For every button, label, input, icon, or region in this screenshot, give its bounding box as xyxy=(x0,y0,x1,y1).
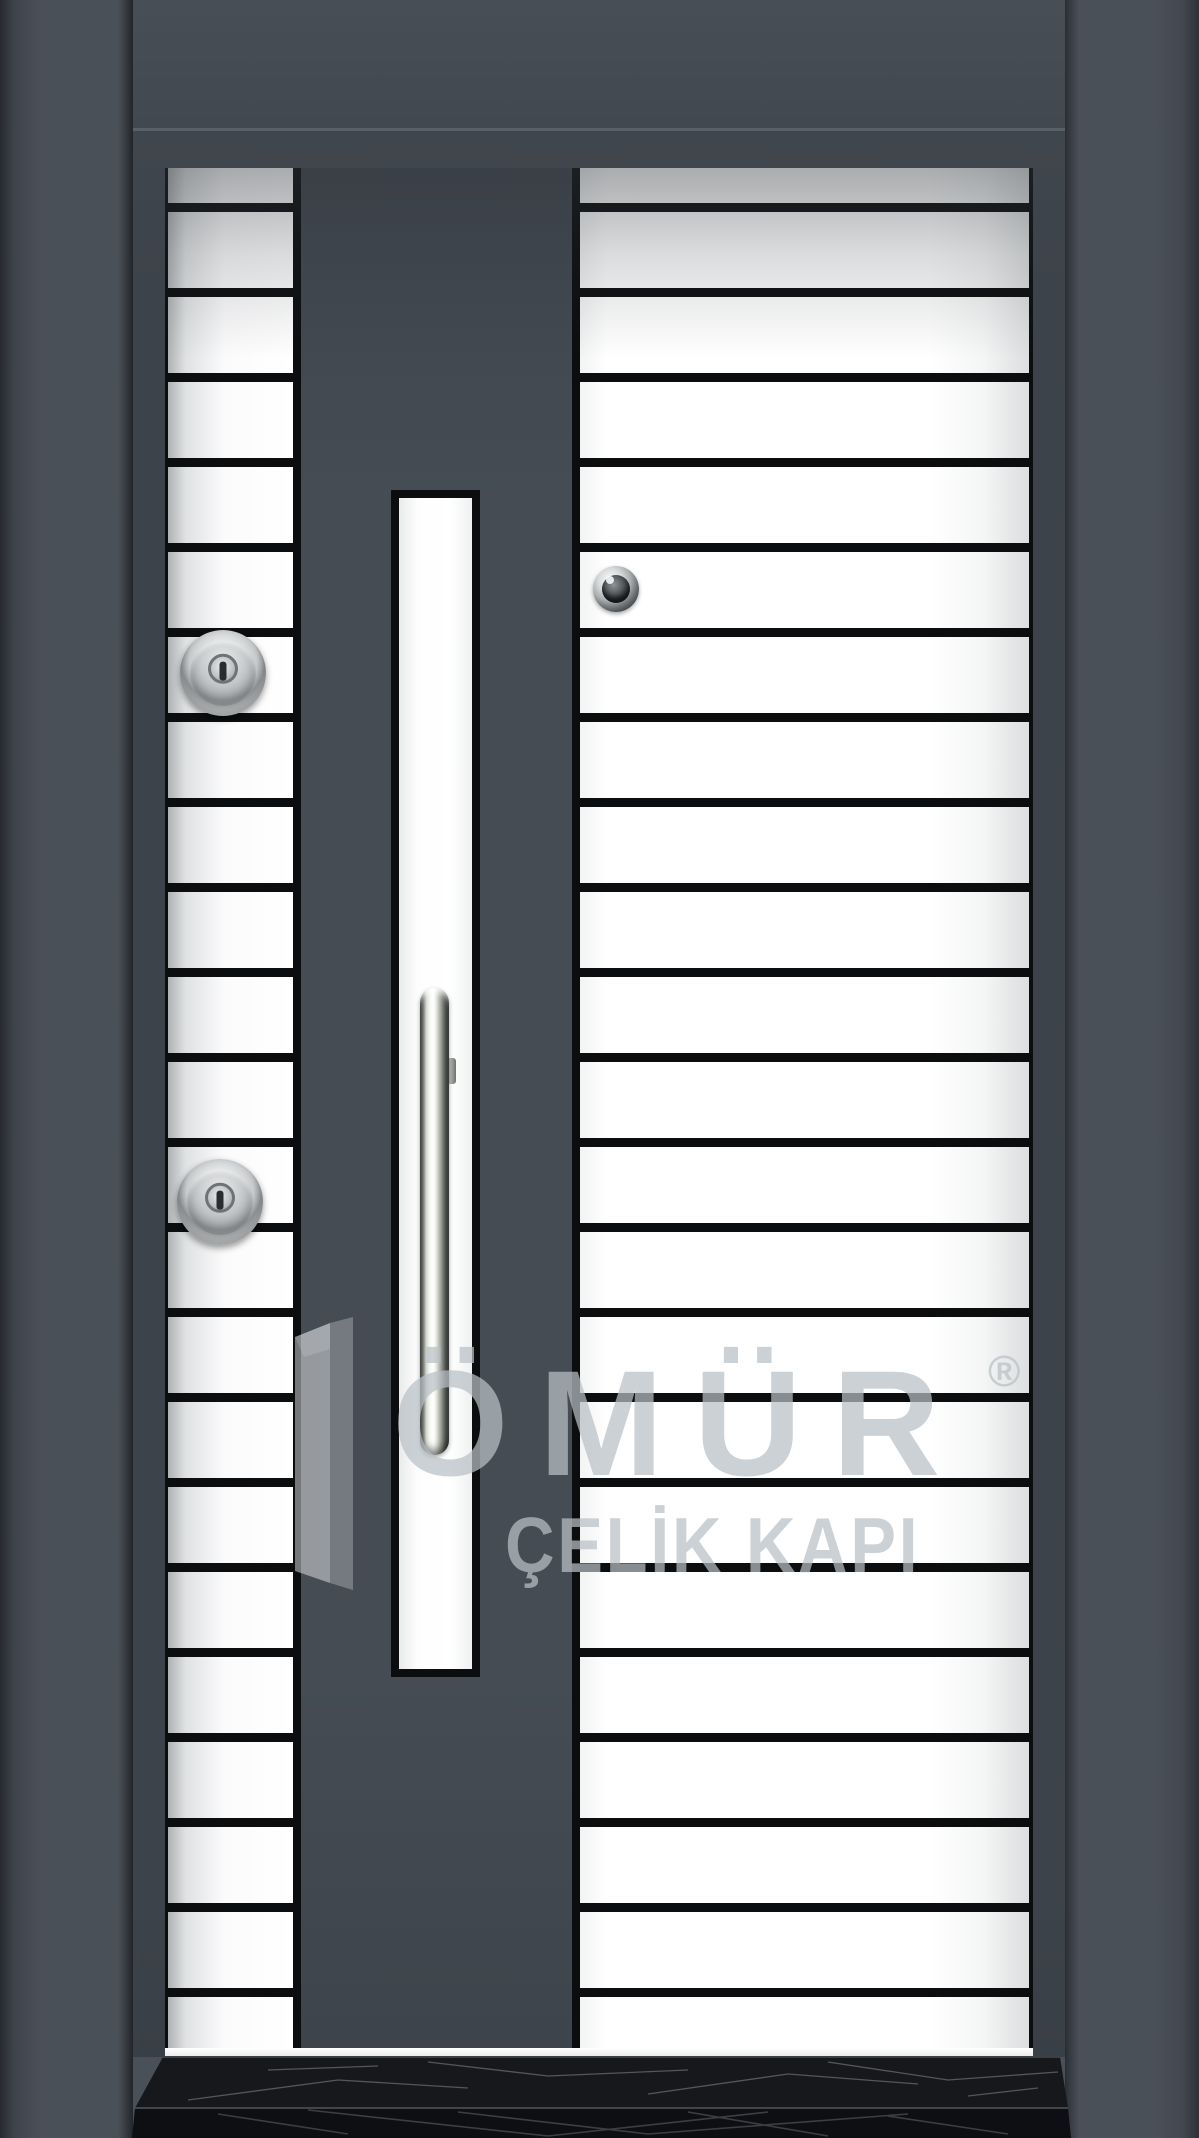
stripe-groove-line xyxy=(580,543,1029,552)
stripe-groove-line xyxy=(168,1053,293,1062)
stripe-groove-line xyxy=(168,543,293,552)
stripe-groove-line xyxy=(168,1733,293,1742)
door-product-photo: { "scene": { "description": "steel secur… xyxy=(0,0,1199,2138)
stripe-groove-line xyxy=(580,1308,1029,1317)
pull-handle-icon[interactable] xyxy=(420,988,449,1455)
stripe-groove-line xyxy=(168,458,293,467)
right-column-divider-groove xyxy=(572,168,580,2048)
stripe-groove-line xyxy=(168,1903,293,1912)
wall-seam-right xyxy=(1065,0,1079,2138)
stripe-groove-line xyxy=(168,883,293,892)
stripe-groove-line xyxy=(580,883,1029,892)
stripe-groove-line xyxy=(168,1308,293,1317)
marble-threshold xyxy=(128,2050,1080,2138)
stripe-groove-line xyxy=(580,288,1029,297)
upper-lock-cylinder-icon[interactable] xyxy=(180,630,266,716)
stripe-groove-line xyxy=(168,1648,293,1657)
stripe-groove-line xyxy=(168,1138,293,1147)
keyhole-slot-icon xyxy=(217,1191,224,1210)
stripe-groove-line xyxy=(168,1563,293,1572)
stripe-groove-line xyxy=(580,1053,1029,1062)
wall-seam-left xyxy=(118,0,133,2138)
transom-panel xyxy=(133,0,1065,131)
stripe-groove-line xyxy=(580,1988,1029,1997)
stripe-groove-line xyxy=(168,1393,293,1402)
stripe-groove-line xyxy=(580,1223,1029,1232)
stripe-groove-line xyxy=(168,968,293,977)
stripe-groove-line xyxy=(580,968,1029,977)
stripe-groove-line xyxy=(580,1563,1029,1572)
stripe-groove-line xyxy=(168,373,293,382)
stripe-groove-line xyxy=(168,203,293,212)
stripe-groove-line xyxy=(580,1903,1029,1912)
stripe-groove-line xyxy=(580,373,1029,382)
left-stripe-column xyxy=(168,168,293,2048)
keyhole-slot-icon xyxy=(220,662,227,681)
stripe-groove-line xyxy=(168,288,293,297)
peephole-glint xyxy=(606,576,614,584)
stripe-groove-line xyxy=(580,1393,1029,1402)
stripe-groove-line xyxy=(580,1138,1029,1147)
left-column-divider-groove xyxy=(293,168,301,2048)
lower-lock-cylinder-icon[interactable] xyxy=(177,1159,263,1245)
stripe-groove-line xyxy=(580,798,1029,807)
leaf-right-groove xyxy=(1029,168,1033,2048)
stripe-groove-line xyxy=(580,1818,1029,1827)
stripe-groove-line xyxy=(580,713,1029,722)
stripe-groove-line xyxy=(580,458,1029,467)
stripe-groove-line xyxy=(580,628,1029,637)
stripe-groove-line xyxy=(580,1648,1029,1657)
peephole-icon xyxy=(593,566,639,612)
stripe-groove-line xyxy=(168,1988,293,1997)
stripe-groove-line xyxy=(168,1478,293,1487)
stripe-groove-line xyxy=(580,1478,1029,1487)
stripe-groove-line xyxy=(580,203,1029,212)
stripe-groove-line xyxy=(580,1733,1029,1742)
right-stripe-column xyxy=(580,168,1029,2048)
stripe-groove-line xyxy=(168,798,293,807)
stripe-groove-line xyxy=(168,1818,293,1827)
